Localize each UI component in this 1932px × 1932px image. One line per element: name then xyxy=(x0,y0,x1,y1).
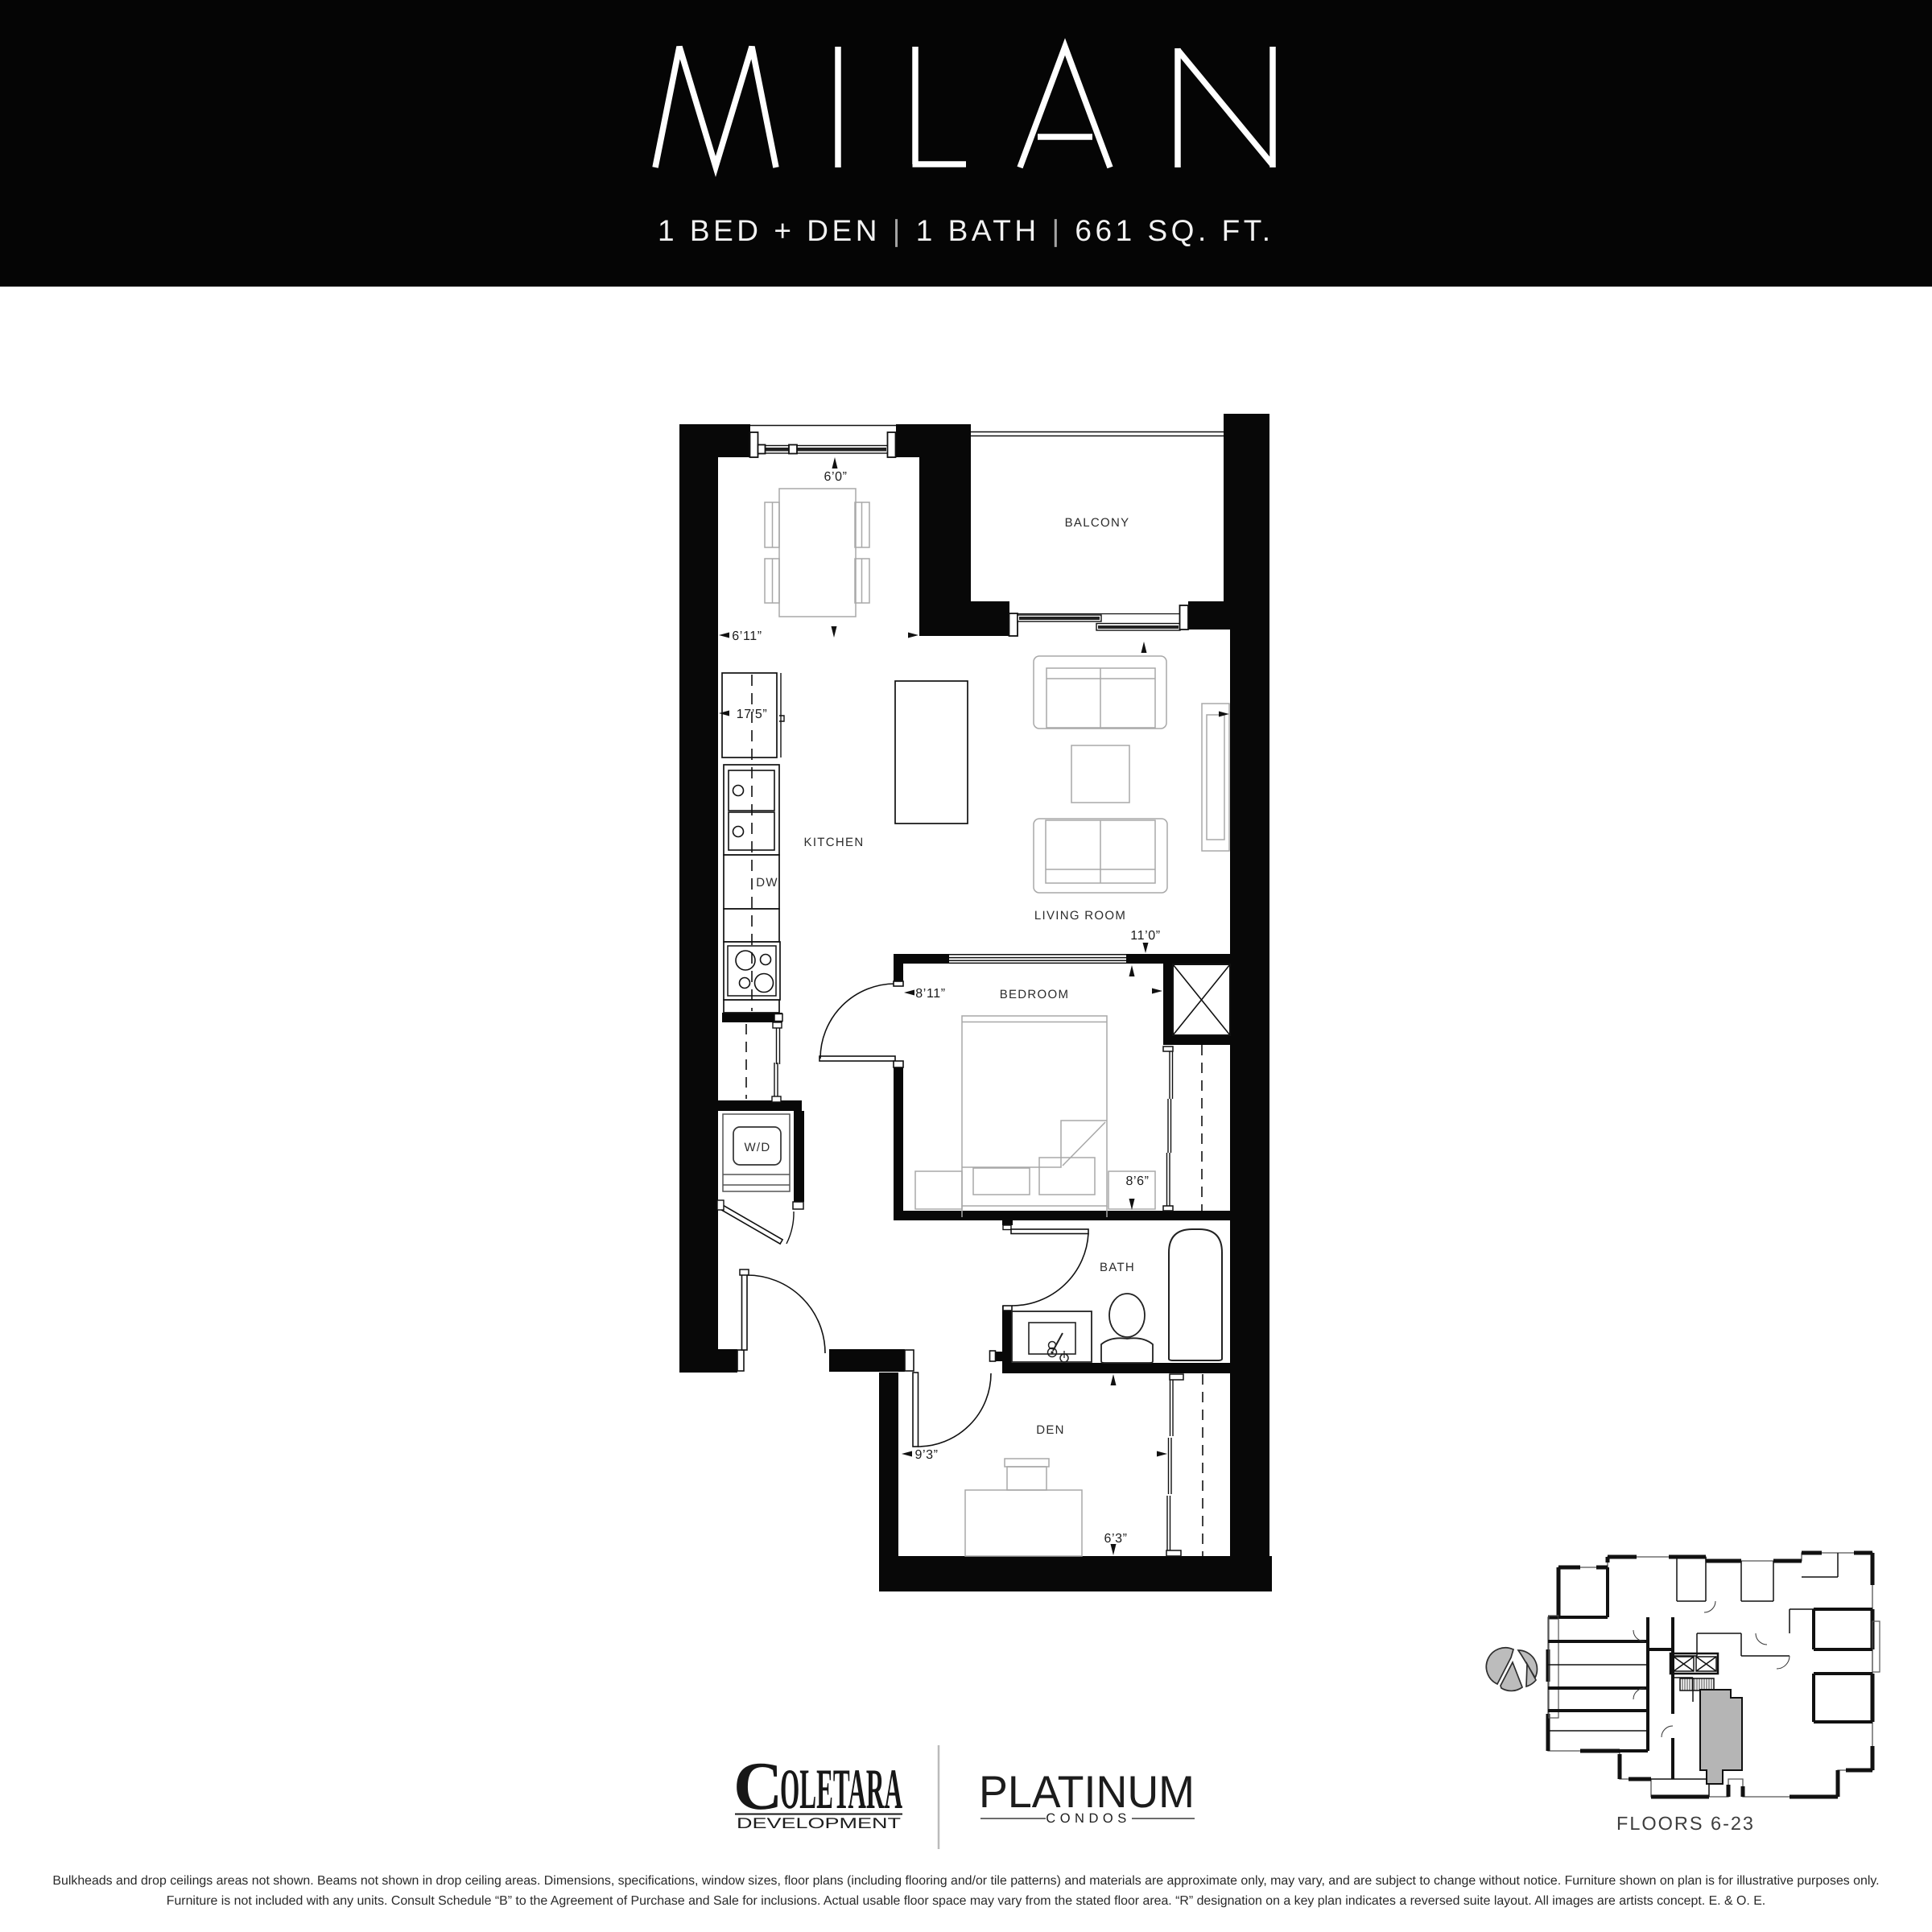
svg-text:W/D: W/D xyxy=(744,1141,770,1154)
svg-text:DW: DW xyxy=(756,876,778,890)
svg-text:FLOORS 6-23: FLOORS 6-23 xyxy=(1616,1813,1757,1834)
svg-text:1 BED + DEN | 1 BATH | 661 SQ.: 1 BED + DEN | 1 BATH | 661 SQ. FT. xyxy=(658,214,1274,247)
svg-text:DEVELOPMENT: DEVELOPMENT xyxy=(737,1814,901,1831)
svg-text:8’11”: 8’11” xyxy=(915,987,945,1001)
svg-text:8’6”: 8’6” xyxy=(1125,1174,1149,1188)
svg-text:BALCONY: BALCONY xyxy=(1065,516,1130,530)
svg-text:LIVING ROOM: LIVING ROOM xyxy=(1034,909,1126,923)
svg-text:PLATINUM: PLATINUM xyxy=(979,1766,1195,1817)
svg-text:Bulkheads and drop ceilings ar: Bulkheads and drop ceilings areas not sh… xyxy=(52,1874,1879,1888)
svg-text:BEDROOM: BEDROOM xyxy=(1000,988,1070,1001)
svg-text:BATH: BATH xyxy=(1100,1261,1135,1274)
svg-text:6’3”: 6’3” xyxy=(1104,1532,1127,1546)
svg-text:17’5”: 17’5” xyxy=(737,708,768,721)
svg-text:9’3”: 9’3” xyxy=(914,1448,938,1462)
svg-text:OLETARA: OLETARA xyxy=(780,1758,902,1821)
svg-text:6’0”: 6’0” xyxy=(824,470,847,484)
svg-text:6’11”: 6’11” xyxy=(732,630,762,643)
svg-text:C: C xyxy=(733,1748,782,1824)
svg-text:DEN: DEN xyxy=(1036,1423,1065,1437)
svg-text:Furniture is not included with: Furniture is not included with any units… xyxy=(167,1894,1765,1908)
svg-text:CONDOS: CONDOS xyxy=(1046,1811,1130,1826)
svg-text:KITCHEN: KITCHEN xyxy=(804,836,865,849)
svg-text:11’0”: 11’0” xyxy=(1130,929,1160,943)
